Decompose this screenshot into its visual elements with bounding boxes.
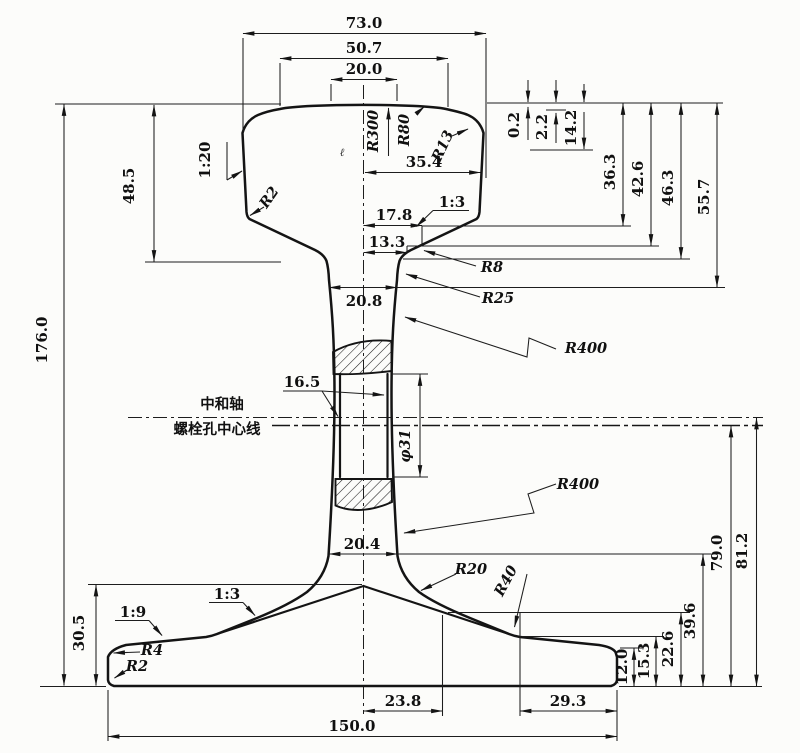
dim-foot-23-8-label: 23.8 [385, 692, 422, 710]
leader-1-9 [149, 621, 162, 636]
dim-below-axis-81-label: 81.2 [733, 533, 751, 570]
radius-shoulder-label: R80 [396, 114, 413, 147]
rail-profile-path [108, 105, 617, 686]
hatch-band-upper [333, 340, 392, 374]
leader-r25 [406, 274, 480, 297]
foot-slope-construction-right [364, 586, 510, 634]
dim-offset-13-3-label: 13.3 [369, 233, 406, 251]
dim-crown-outer-label: 50.7 [346, 39, 383, 57]
radius-head-corner-label: R13 [428, 128, 457, 165]
radius-crown-label: R300 [365, 110, 382, 153]
leader-r8 [424, 251, 476, 267]
leader-r40 [515, 574, 528, 627]
drawing-canvas: 73.0 50.7 20.0 35.4 17.8 13.3 20.8 20.4 … [0, 0, 800, 753]
dim-crown-drop-1-label: 0.2 [505, 112, 523, 138]
dim-depth-46-3-label: 46.3 [659, 170, 677, 207]
dim-foot-height-label: 30.5 [70, 615, 88, 652]
neutral-axis-label: 中和轴 [200, 395, 244, 413]
rail-profile-drawing: 73.0 50.7 20.0 35.4 17.8 13.3 20.8 20.4 … [0, 0, 800, 753]
dim-crown-inner-label: 20.0 [346, 60, 383, 78]
leader-r80 [417, 107, 425, 114]
radius-foot-edge-bottom-label: R2 [125, 658, 148, 675]
radius-labels: R300 R80 R13 R2 R8 R25 R400 R400 R20 R40… [125, 110, 607, 675]
radius-web-curve-upper-label: R400 [564, 340, 607, 357]
dim-web-upper-label: 20.8 [346, 292, 383, 310]
dim-edge-12-0-label: 12.0 [613, 649, 631, 686]
leader-r2-head [250, 207, 264, 216]
dim-head-width-label: 73.0 [346, 14, 383, 32]
radius-head-side-label: R2 [255, 183, 282, 212]
leader-r20 [421, 574, 456, 591]
dim-web-thickness-label: 16.5 [284, 373, 321, 391]
radius-web-curve-lower-label: R400 [556, 476, 599, 493]
dim-edge-22-6-label: 22.6 [659, 631, 677, 668]
dim-foot-29-3-label: 29.3 [550, 692, 587, 710]
leader-r4 [114, 652, 141, 653]
leader-r400-upper [405, 317, 556, 357]
dim-edge-15-3-label: 15.3 [635, 643, 653, 680]
radius-foot-edge-top-label: R4 [140, 642, 163, 659]
axis-text-labels: 中和轴 螺栓孔中心线 [174, 395, 261, 438]
rail-outline [108, 105, 617, 686]
bolt-hole-centerline-label: 螺栓孔中心线 [174, 420, 261, 438]
slope-head-bottom-label: 1:3 [439, 193, 465, 211]
dim-total-height-label: 176.0 [33, 317, 51, 364]
dim-head-height-label: 48.5 [120, 168, 138, 205]
radius-foot-slope-label: R40 [490, 563, 521, 600]
slope-foot-outer-label: 1:9 [120, 603, 146, 621]
dim-web-lower-label: 20.4 [344, 535, 381, 553]
stray-mark: ℓ [340, 146, 345, 159]
leader-lines [114, 107, 557, 679]
dim-crown-drop-2-label: 2.2 [533, 114, 551, 140]
radius-foot-fillet-label: R20 [454, 561, 487, 578]
dim-depth-55-7-label: 55.7 [695, 179, 713, 216]
radius-head-fillet-label: R8 [480, 259, 503, 276]
dim-offset-17-8-label: 17.8 [376, 206, 413, 224]
dim-foot-width-label: 150.0 [329, 717, 376, 735]
leader-1-20 [227, 171, 242, 180]
leader-1-3-head [417, 211, 434, 227]
dim-depth-36-3-label: 36.3 [601, 154, 619, 191]
dim-bolt-hole-dia-label: φ31 [397, 429, 414, 462]
radius-web-fillet-label: R25 [481, 290, 514, 307]
slope-foot-inner-label: 1:3 [214, 585, 240, 603]
slope-head-side-label: 1:20 [196, 142, 214, 179]
leader-r400-lower [404, 484, 556, 533]
dim-crown-drop-3-label: 14.2 [562, 110, 580, 147]
dim-depth-42-6-label: 42.6 [629, 161, 647, 198]
dim-below-axis-79-label: 79.0 [708, 535, 726, 572]
leader-1-3-foot [243, 603, 255, 616]
dim-edge-39-6-label: 39.6 [681, 603, 699, 640]
leader-16-5-b [322, 391, 384, 395]
